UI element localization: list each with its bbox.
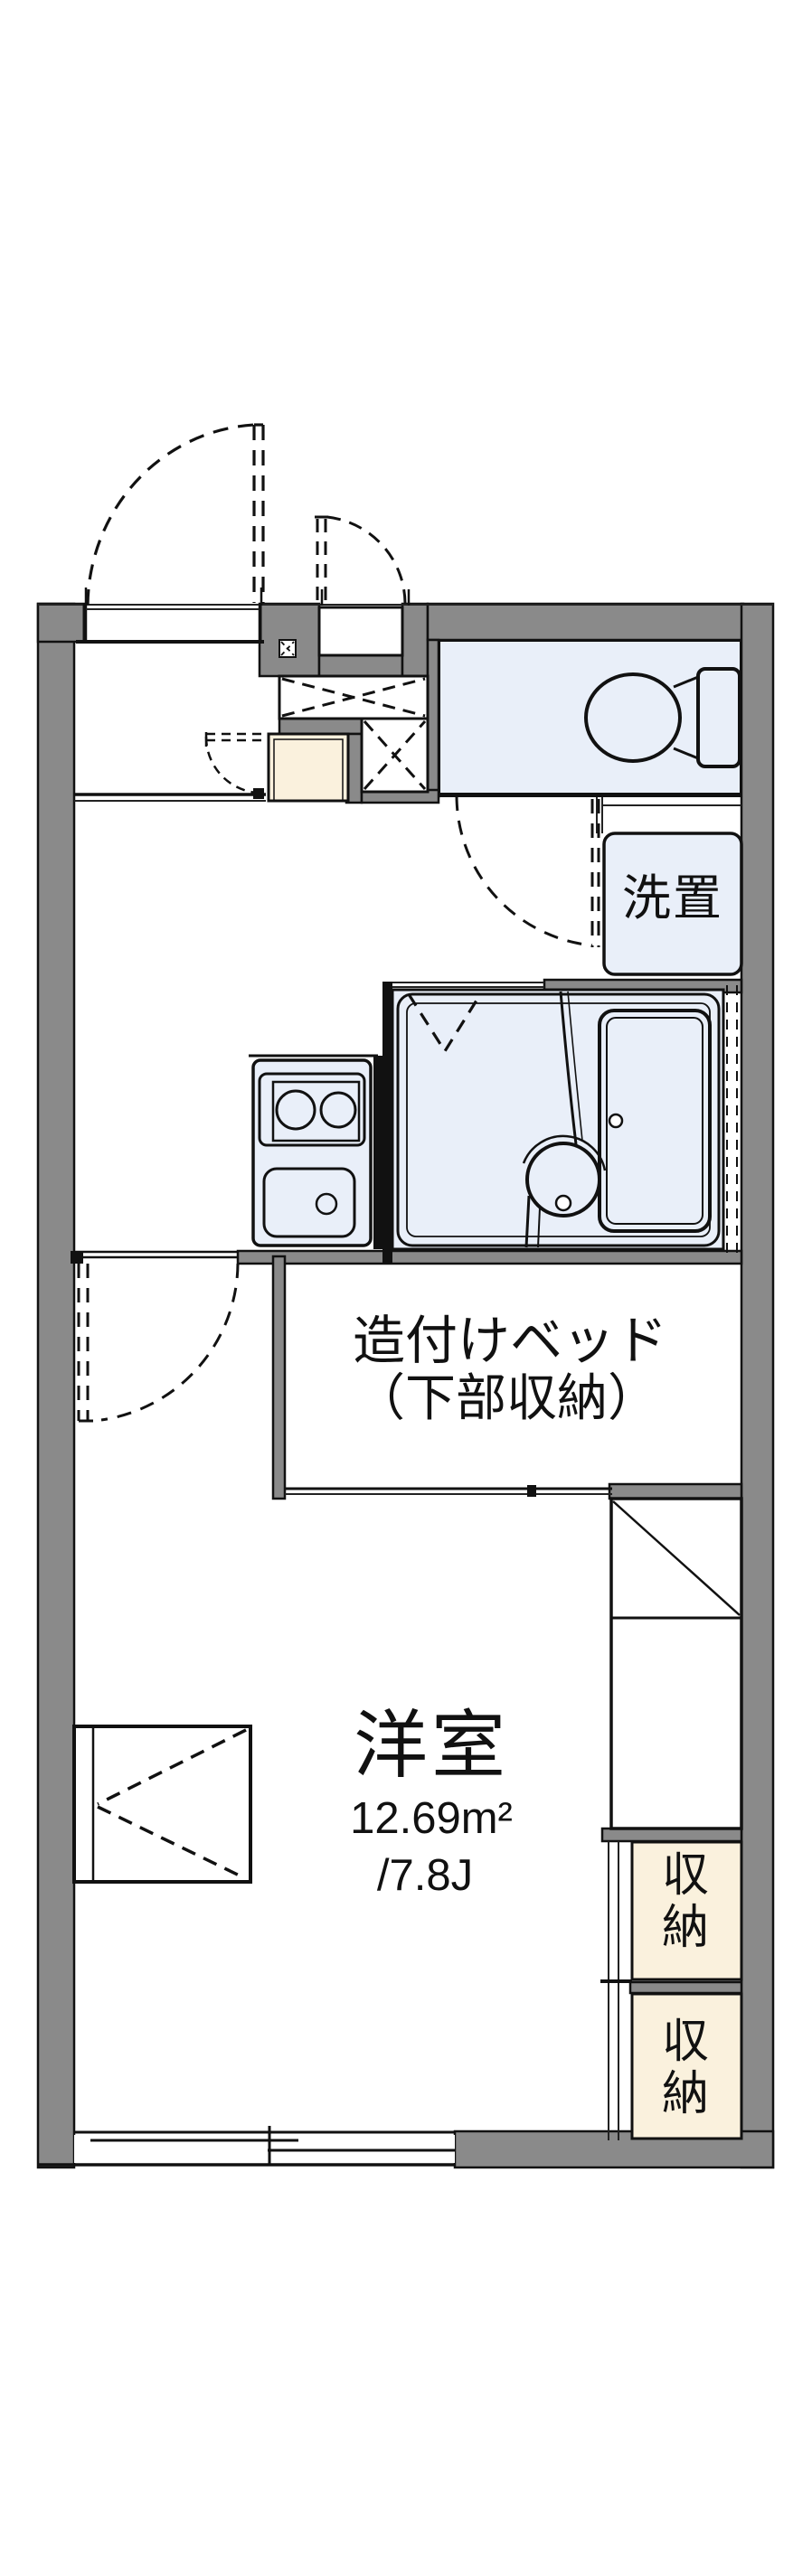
fold-down-table [74,1726,250,1882]
bed-front-mullion [527,1485,536,1497]
toilet-door-swing [457,796,599,947]
room-door-swing [79,1264,238,1421]
closet-lower-wall [279,719,362,734]
toilet-icon [586,669,740,766]
kitchen-unit [253,1060,371,1246]
bathroom [392,985,737,1255]
meter-box-recess [319,607,402,655]
meter-box-recess-wall [319,655,402,676]
kitchen-bath-divider [373,1056,382,1249]
label-built-in-bed: 造付けベッド [353,1312,667,1370]
label-laundry-area: 洗置 [622,871,723,926]
floorplan-drawing [0,0,812,2576]
label-bed-storage-note: （下部収納） [354,1370,658,1426]
label-room-name: 洋室 [354,1705,509,1788]
step-door-swing [206,732,262,793]
meter-box-door-swing [315,517,405,605]
bed-bottom-wall [609,1484,741,1499]
entrance-door-swing [88,425,263,605]
entrance-step [269,734,348,801]
refrigerator-space [611,1499,741,1829]
bed-left-wall [273,1256,285,1499]
label-room-area-tatami: /7.8J [377,1851,473,1901]
kitchen-bath-bottom-wall [238,1251,741,1264]
label-storage-lower: 収納 [660,2016,711,2120]
right-wall [741,604,773,2167]
column-bottom-wall [602,1829,741,1841]
room-door-hinge [71,1251,83,1264]
bathtub-icon [600,1011,710,1231]
label-storage-upper: 収納 [660,1849,711,1954]
label-room-area-sqm: 12.69m² [350,1794,513,1844]
top-left-corner-wall [38,604,86,642]
bath-left-wall [382,982,392,1264]
storage-divider-wall [630,1982,741,1993]
floorplan-canvas: 洗置 造付けベッド （下部収納） 洋室 12.69m² /7.8J 収納 収納 [0,0,812,2576]
bath-side-vent-strip [727,985,737,1255]
top-wall-segment [402,604,428,676]
toilet-left-wall [428,640,439,797]
left-wall [38,604,74,2167]
top-wall-toilet [428,604,743,640]
